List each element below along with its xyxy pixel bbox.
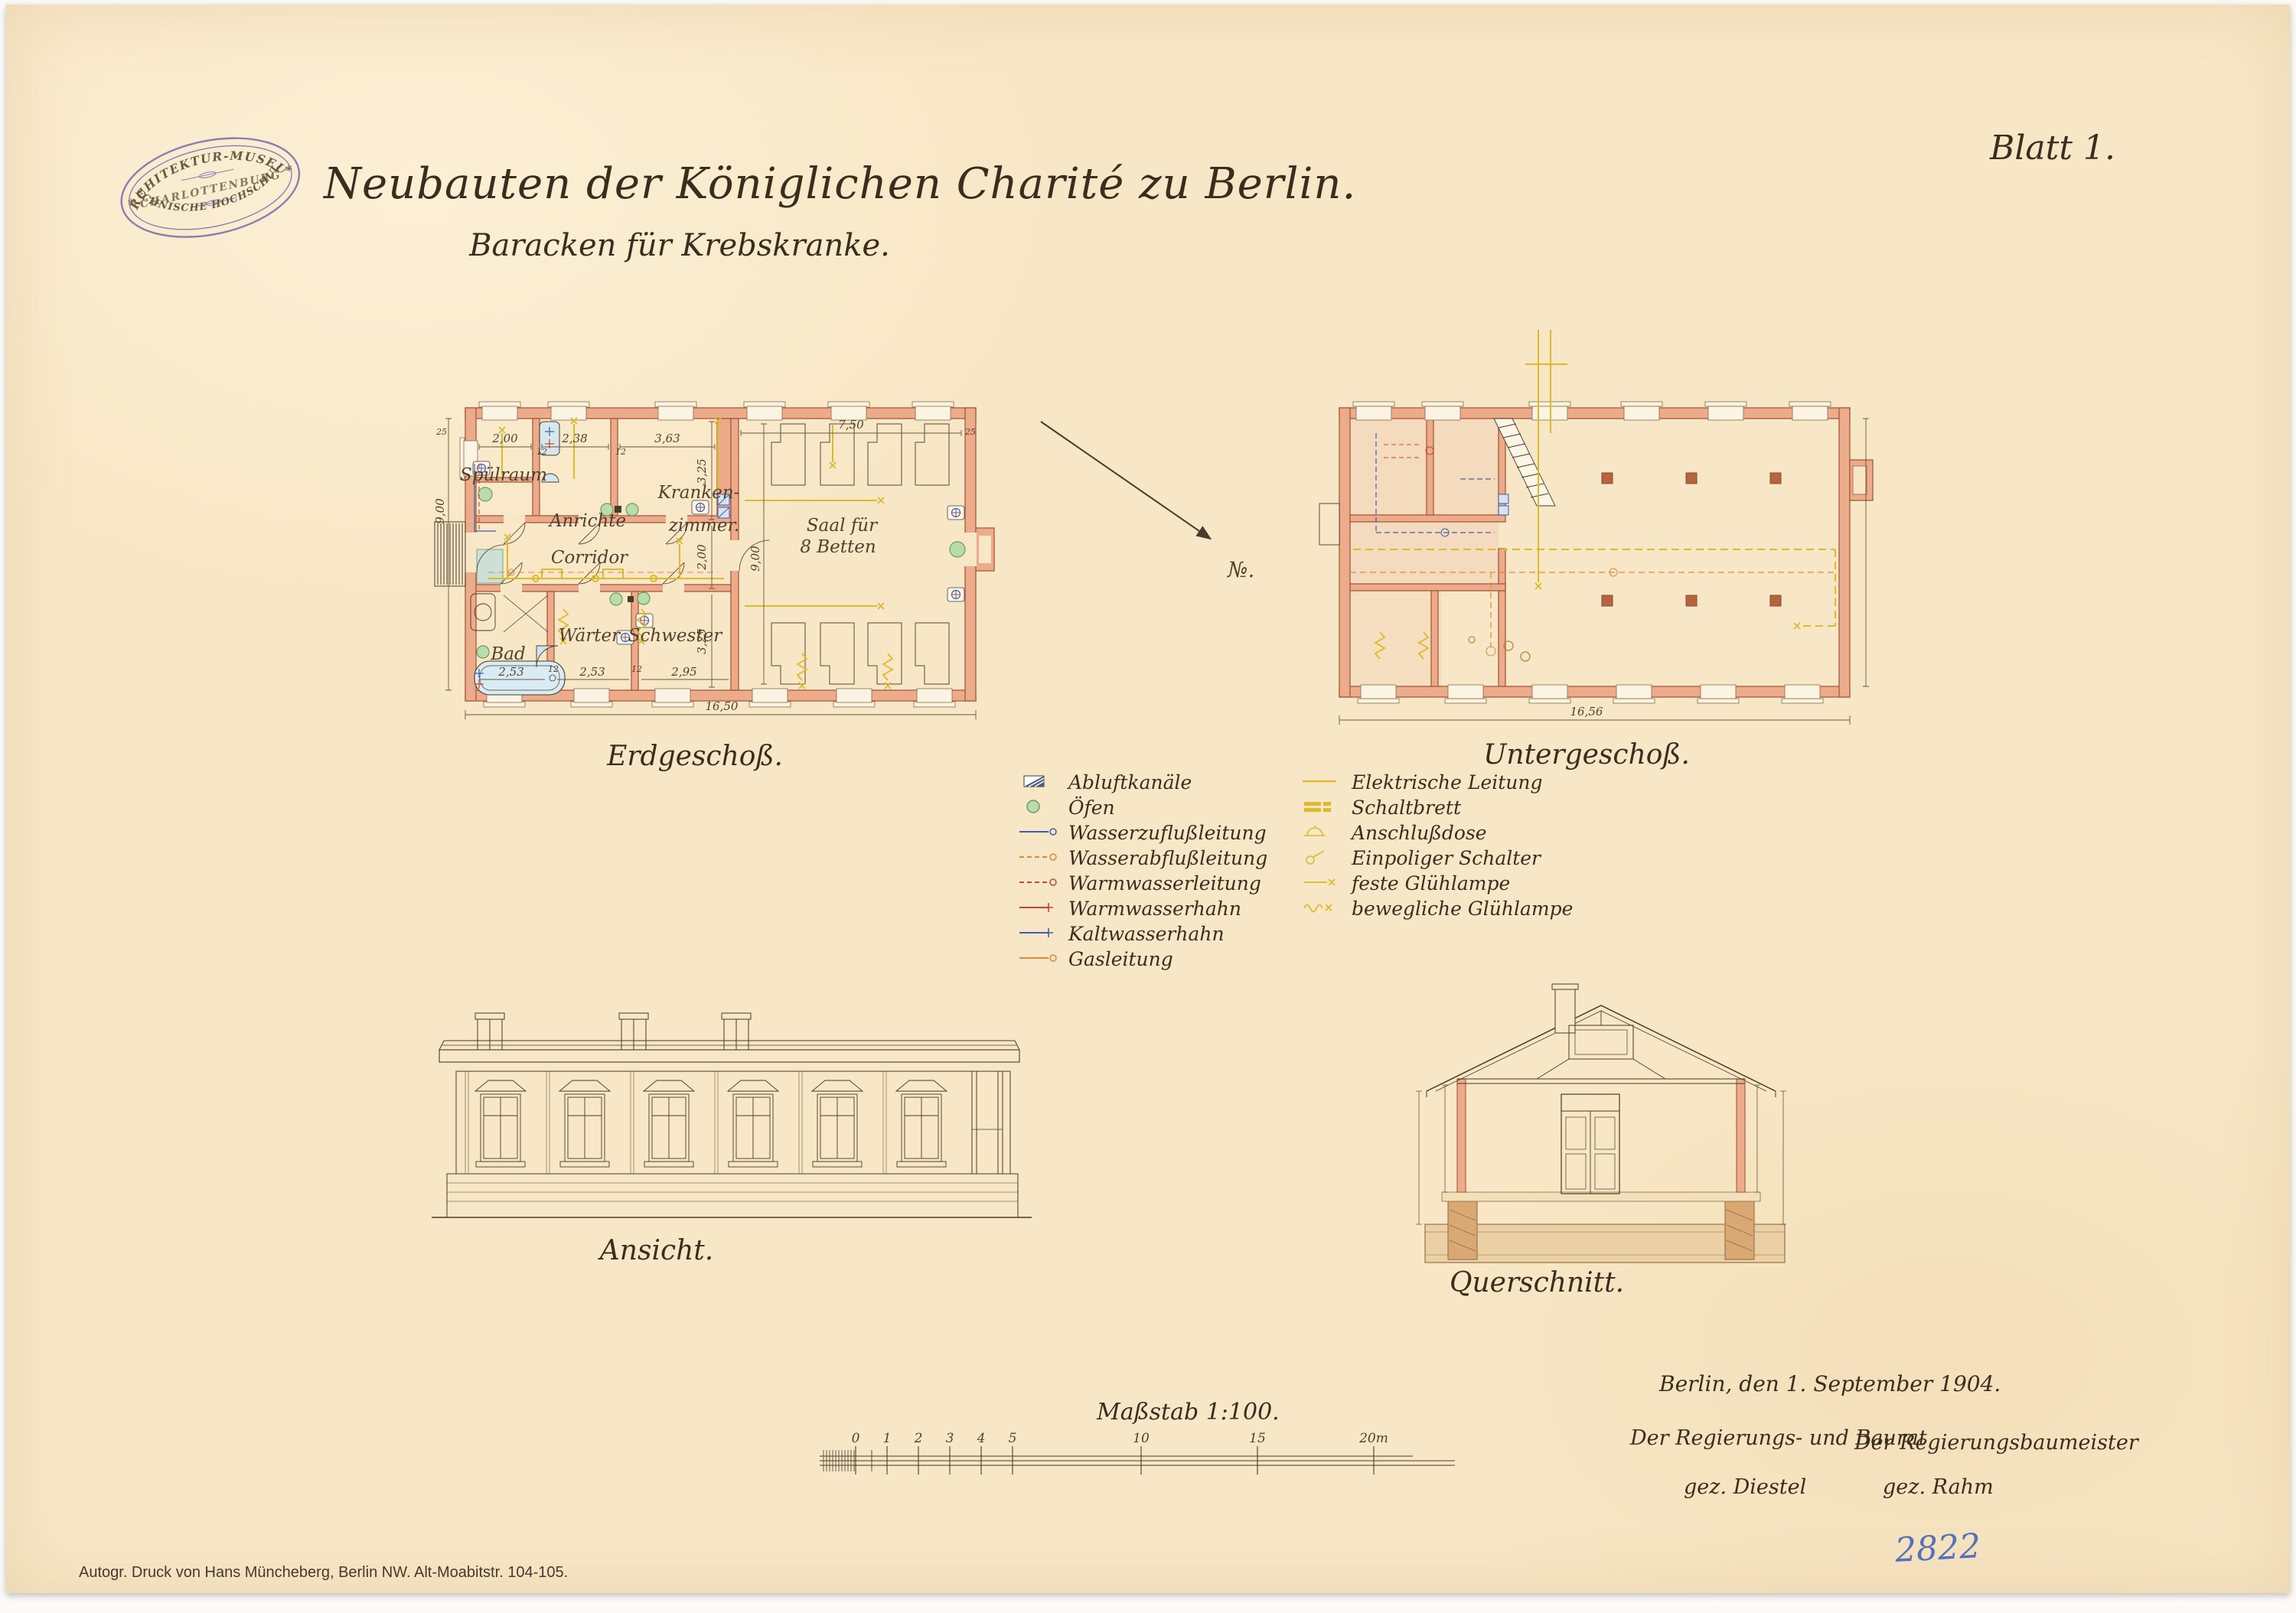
fixed-lamp-icon xyxy=(1301,873,1352,894)
legend-row-feste-lampe: feste Glühlampe xyxy=(1301,871,1573,896)
scale-label: Maßstab 1:100. xyxy=(1097,1399,1280,1426)
museum-stamp-svg: ARCHITEKTUR-MUSEUM CHARLOTTENBURG * * TE… xyxy=(103,112,318,265)
legend-row-schalter: Einpoliger Schalter xyxy=(1301,846,1573,871)
erdgeschoss-plan: 2,00 2,38 3,63 7,50 9,00 9,00 3,25 2,00 … xyxy=(419,383,1062,781)
legend-label: Schaltbrett xyxy=(1352,797,1461,819)
arrow-line xyxy=(1041,422,1209,538)
stamp-star-right: * xyxy=(285,162,295,179)
legend-row-elektrisch: Elektrische Leitung xyxy=(1301,770,1573,795)
scale-tick: 5 xyxy=(1009,1431,1017,1446)
legend-label: Kaltwasserhahn xyxy=(1068,923,1225,945)
hot-water-line-icon xyxy=(1018,873,1068,894)
room-anrichte: Anrichte xyxy=(548,511,626,531)
inventory-number: 2822 xyxy=(1894,1527,1982,1570)
legend-row-kalthahn: Kaltwasserhahn xyxy=(1018,921,1267,947)
dim-wall12-a: 12 xyxy=(536,447,547,457)
water-drain-line-icon xyxy=(1018,848,1068,869)
section-structure xyxy=(1427,984,1776,1192)
legend-label: Wasserzuflußleitung xyxy=(1068,822,1267,844)
ug-left-niche xyxy=(1319,503,1339,545)
caption-querschnitt: Querschnitt. xyxy=(1441,1267,1632,1299)
erd-room-labels: Spülraum Anrichte Kranken- zimmer. Corri… xyxy=(460,465,879,664)
legend-label: Anschlußdose xyxy=(1352,822,1487,844)
exhaust-duct-icon xyxy=(1018,772,1068,793)
legend-label: Öfen xyxy=(1068,797,1115,819)
scale-tick: 4 xyxy=(977,1431,986,1446)
dim-total: 16,50 xyxy=(706,699,739,713)
scale-bar-lines xyxy=(820,1446,1455,1475)
cold-water-tap-icon xyxy=(1018,924,1068,945)
dim-wall12-d: 12 xyxy=(631,664,642,674)
legend-label: Warmwasserleitung xyxy=(1068,872,1261,894)
legend-row-anschlussdose: Anschlußdose xyxy=(1301,820,1573,846)
drawing-scan: ARCHITEKTUR-MUSEUM CHARLOTTENBURG * * TE… xyxy=(0,0,2296,1613)
dim-kranken-w: 3,63 xyxy=(654,432,680,445)
legend-row-bewegliche-lampe: bewegliche Glühlampe xyxy=(1301,896,1573,921)
signature-right-name: gez. Rahm xyxy=(1883,1475,1994,1499)
scale-tick: 15 xyxy=(1249,1431,1266,1446)
dim-waerter: 2,53 xyxy=(579,665,605,679)
elevation-lines xyxy=(432,1013,1032,1217)
room-corridor: Corridor xyxy=(551,548,629,568)
legend-label: Gasleitung xyxy=(1068,948,1173,970)
erd-dim-labels: 2,00 2,38 3,63 7,50 9,00 9,00 3,25 2,00 … xyxy=(433,418,976,713)
dim-saal-h: 9,00 xyxy=(748,546,762,572)
room-bad: Bad xyxy=(490,644,525,664)
dim-spuelraum: 2,00 xyxy=(491,432,518,445)
dim-wall12-b: 12 xyxy=(615,447,626,457)
untergeschoss-plan: 16,56 xyxy=(1292,318,1896,785)
legend-label: Abluftkanäle xyxy=(1068,771,1192,793)
single-pole-switch-icon xyxy=(1301,848,1352,869)
scale-bar: 0 1 2 3 4 5 10 15 20m xyxy=(787,1428,1560,1489)
sheet-title: Neubauten der Königlichen Charité zu Ber… xyxy=(324,159,1104,209)
legend-row-schaltbrett: Schaltbrett xyxy=(1301,795,1573,820)
ug-dim-total: 16,56 xyxy=(1570,705,1603,719)
elevation-windows xyxy=(475,1080,947,1167)
ug-columns xyxy=(1602,473,1781,606)
caption-untergeschoss: Untergeschoß. xyxy=(1468,739,1705,771)
scale-tick: 0 xyxy=(852,1431,860,1446)
legend-row-warmleitung: Warmwasserleitung xyxy=(1018,871,1267,896)
caption-erdgeschoss: Erdgeschoß. xyxy=(588,741,802,772)
scale-bar-labels: 0 1 2 3 4 5 10 15 20m xyxy=(852,1431,1388,1446)
dim-kranken-h: 3,25 xyxy=(695,458,709,484)
legend-label: Warmwasserhahn xyxy=(1068,898,1241,920)
legend-label: bewegliche Glühlampe xyxy=(1352,898,1573,920)
caption-ansicht: Ansicht. xyxy=(576,1235,737,1266)
legend-row-gas: Gasleitung xyxy=(1018,947,1267,972)
dim-wall12-c: 12 xyxy=(548,664,559,674)
paper-sheet: ARCHITEKTUR-MUSEUM CHARLOTTENBURG * * TE… xyxy=(6,5,2290,1593)
electric-line-icon xyxy=(1301,772,1352,793)
ug-shaft xyxy=(1853,466,1867,494)
stamp-arc-bottom: TECHNISCHE HOCHSCHULE. xyxy=(103,112,289,232)
arrow-mark: №. xyxy=(1227,557,1254,582)
room-saal-1: Saal für xyxy=(807,516,879,536)
room-spuelraum: Spülraum xyxy=(460,465,547,485)
sheet-subtitle: Baracken für Krebskranke. xyxy=(297,228,1062,263)
legend-left-column: Abluftkanäle Öfen Wasserzuflußleitung Wa… xyxy=(1018,770,1267,972)
gas-line-icon xyxy=(1018,949,1068,970)
legend-row-abfluss: Wasserabflußleitung xyxy=(1018,846,1267,871)
dim-anrichte: 2,38 xyxy=(561,432,587,445)
oven-icon xyxy=(1018,797,1068,819)
section-foundation xyxy=(1425,1192,1785,1263)
sheet-number: Blatt 1. xyxy=(1990,129,2115,168)
signature-left-name: gez. Diestel xyxy=(1684,1475,1806,1499)
scale-tick: 10 xyxy=(1133,1431,1150,1446)
water-supply-line-icon xyxy=(1018,823,1068,844)
hot-water-tap-icon xyxy=(1018,898,1068,920)
dim-wall25-r: 25 xyxy=(964,427,976,437)
erd-entrance-steps xyxy=(435,522,465,586)
dim-corridor-h: 2,00 xyxy=(695,544,709,571)
signature-right-role: Der Regierungsbaumeister xyxy=(1854,1431,2138,1455)
scale-tick: 3 xyxy=(946,1431,954,1446)
elevation-drawing xyxy=(419,999,1047,1244)
dim-height-left: 9,00 xyxy=(433,498,447,524)
section-drawing xyxy=(1399,969,1828,1298)
museum-stamp: ARCHITEKTUR-MUSEUM CHARLOTTENBURG * * TE… xyxy=(103,112,318,265)
dim-schwester: 2,95 xyxy=(670,665,696,679)
elevation-porch xyxy=(972,1071,1003,1174)
section-door xyxy=(1561,1094,1619,1194)
legend-right-column: Elektrische Leitung Schaltbrett Anschluß… xyxy=(1301,770,1573,921)
scale-tick: 20m xyxy=(1358,1431,1388,1446)
legend-label: Wasserabflußleitung xyxy=(1068,847,1267,869)
legend-label: feste Glühlampe xyxy=(1352,872,1510,894)
movable-lamp-icon xyxy=(1301,898,1352,920)
room-saal-2: 8 Betten xyxy=(800,537,876,557)
dim-bad: 2,53 xyxy=(497,665,523,679)
legend-row-warmhahn: Warmwasserhahn xyxy=(1018,896,1267,921)
view-arrow: №. xyxy=(1024,402,1261,594)
room-kranken-1: Kranken- xyxy=(657,483,740,503)
dim-saal-w: 7,50 xyxy=(838,418,864,432)
room-kranken-2: zimmer. xyxy=(668,516,739,536)
legend-row-abluft: Abluftkanäle xyxy=(1018,770,1267,795)
legend-label: Einpoliger Schalter xyxy=(1352,847,1541,869)
date-line: Berlin, den 1. September 1904. xyxy=(1659,1371,1950,1396)
room-schwester: Schwester xyxy=(628,626,723,646)
scale-tick: 2 xyxy=(914,1431,923,1446)
junction-box-icon xyxy=(1301,823,1352,844)
dim-wall25-l: 25 xyxy=(435,427,447,437)
legend-row-ofen: Öfen xyxy=(1018,795,1267,820)
printer-imprint: Autogr. Druck von Hans Müncheberg, Berli… xyxy=(79,1564,568,1582)
legend-label: Elektrische Leitung xyxy=(1352,771,1543,793)
scale-tick: 1 xyxy=(883,1431,892,1446)
room-waerter: Wärter xyxy=(559,626,621,646)
legend-row-zufluss: Wasserzuflußleitung xyxy=(1018,820,1267,846)
switchboard-icon xyxy=(1301,797,1352,819)
